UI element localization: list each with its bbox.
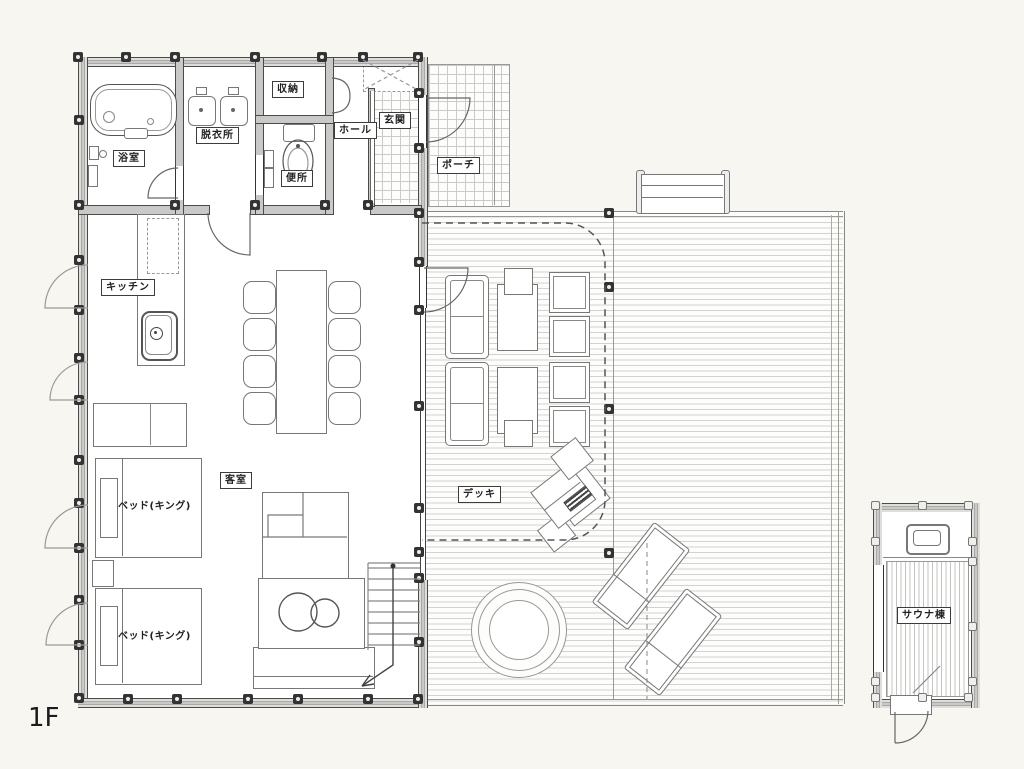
structural-post xyxy=(74,640,84,650)
bed-label: ベッド(キング) xyxy=(118,497,191,512)
structural-post xyxy=(414,401,424,411)
structural-post xyxy=(74,455,84,465)
kitchen-faucet-dot xyxy=(154,331,157,334)
room-label-bath: 浴室 xyxy=(113,150,145,167)
structural-post xyxy=(358,52,368,62)
room-label-toilet: 便所 xyxy=(281,170,313,187)
dining-chair xyxy=(243,355,276,388)
structural-post xyxy=(604,404,614,414)
bathtub-dot xyxy=(147,118,154,125)
door-swing-arc xyxy=(895,711,928,743)
structural-post xyxy=(74,305,84,315)
dining-chair xyxy=(328,281,361,314)
stove-body xyxy=(258,578,365,649)
structural-post xyxy=(414,88,424,98)
structural-post xyxy=(121,52,131,62)
bathtub-drain xyxy=(103,111,115,123)
dining-chair xyxy=(328,355,361,388)
room-label-deck: デッキ xyxy=(458,486,501,503)
hot-tub-water xyxy=(489,600,549,660)
sauna-bench-boards xyxy=(886,561,969,697)
structural-post xyxy=(73,52,83,62)
wall-toilet-hall xyxy=(325,57,334,215)
structural-post xyxy=(74,353,84,363)
stove-hearth-line xyxy=(253,676,373,677)
bench-slat-line xyxy=(641,185,723,186)
room-label-kitchen: キッチン xyxy=(101,279,155,296)
sauna-heater-inner xyxy=(913,530,941,546)
washbasin-faucet xyxy=(196,87,207,95)
wall-left xyxy=(78,57,88,708)
deck-sofa-cushion xyxy=(450,367,484,441)
cabinet-divider xyxy=(150,403,151,445)
room-label-hall: ホール xyxy=(334,122,377,139)
door-opening xyxy=(418,95,427,148)
shower-fixture xyxy=(89,146,99,160)
sauna-wall-post xyxy=(871,501,880,510)
room-label-porch: ポーチ xyxy=(437,157,480,174)
sauna-wall-post xyxy=(968,557,977,566)
structural-post xyxy=(250,52,260,62)
bed-pillow xyxy=(100,606,118,666)
lounger-backrest-line xyxy=(646,640,681,668)
structural-post xyxy=(363,694,373,704)
toilet-paper-holder xyxy=(264,150,274,168)
deck-edge-bottom xyxy=(422,699,843,706)
structural-post xyxy=(414,637,424,647)
sauna-wall-post xyxy=(918,501,927,510)
deck-table-tray xyxy=(504,420,533,447)
stove-hearth xyxy=(253,647,375,689)
sauna-wall-post xyxy=(918,693,927,702)
sauna-wall-post xyxy=(964,693,973,702)
bench-slat-line xyxy=(641,197,723,198)
dining-chair xyxy=(243,281,276,314)
porch-divider xyxy=(494,64,495,205)
floor-label: 1F xyxy=(28,703,60,733)
structural-post xyxy=(604,282,614,292)
deck-inner-line xyxy=(831,215,832,699)
structural-post xyxy=(414,503,424,513)
structural-post xyxy=(74,395,84,405)
entrance-step xyxy=(370,91,375,203)
sauna-glass-left xyxy=(873,565,884,672)
deck-edge-right xyxy=(838,211,845,704)
structural-post xyxy=(74,543,84,553)
shower-head xyxy=(99,150,107,158)
structural-post xyxy=(414,573,424,583)
door-opening xyxy=(419,266,427,308)
deck-sofa-divider xyxy=(450,403,483,404)
structural-post xyxy=(320,200,330,210)
sauna-wall-post xyxy=(871,537,880,546)
sauna-wall-post xyxy=(968,537,977,546)
door-opening xyxy=(175,166,184,200)
structural-post xyxy=(414,305,424,315)
stove-counter xyxy=(262,492,349,580)
deck-bench xyxy=(636,170,728,214)
structural-post xyxy=(172,694,182,704)
entrance-floor xyxy=(373,91,418,203)
dining-table xyxy=(276,270,327,434)
structural-post xyxy=(413,52,423,62)
wall-storage-toilet xyxy=(255,115,334,124)
toilet-tank xyxy=(283,124,315,142)
room-label-entrance: 玄関 xyxy=(379,112,411,129)
room-label-dressing: 脱衣所 xyxy=(196,127,239,144)
structural-post xyxy=(74,693,84,703)
structural-post xyxy=(74,595,84,605)
structural-post xyxy=(317,52,327,62)
deck-sofa-cushion xyxy=(450,280,484,354)
nightstand xyxy=(92,560,114,587)
structural-post xyxy=(74,498,84,508)
washbasin-drain xyxy=(199,108,203,112)
bathtub-inner xyxy=(95,89,172,131)
deck-chair-cushion xyxy=(553,276,586,309)
structural-post xyxy=(414,143,424,153)
structural-post xyxy=(604,548,614,558)
dining-chair xyxy=(243,392,276,425)
room-label-storage: 収納 xyxy=(272,81,304,98)
structural-post xyxy=(243,694,253,704)
structural-post xyxy=(363,200,373,210)
bench-slats xyxy=(641,174,725,214)
structural-post xyxy=(413,694,423,704)
floor-plan-canvas: 浴室 脱衣所 収納 便所 ホール 玄関 ポーチ キッチン 客室 ベッド(キング)… xyxy=(0,0,1024,769)
structural-post xyxy=(74,115,84,125)
dining-chair xyxy=(328,318,361,351)
dining-chair xyxy=(243,318,276,351)
structural-post xyxy=(74,255,84,265)
room-label-sauna: サウナ棟 xyxy=(897,607,951,624)
sauna-bench-divider xyxy=(883,557,971,558)
washbasin-drain xyxy=(231,108,235,112)
structural-post xyxy=(123,694,133,704)
bathtub-faucet xyxy=(124,128,148,139)
dining-chair xyxy=(328,392,361,425)
deck-chair-cushion xyxy=(553,320,586,353)
shower-bar xyxy=(88,165,98,187)
structural-post xyxy=(74,200,84,210)
structural-post xyxy=(414,257,424,267)
structural-post xyxy=(604,208,614,218)
sauna-wall-post xyxy=(968,677,977,686)
structural-post xyxy=(250,200,260,210)
structural-post xyxy=(170,52,180,62)
lounger-backrest-line xyxy=(614,574,649,602)
sauna-wall-post xyxy=(871,693,880,702)
structural-post xyxy=(414,208,424,218)
kitchen-hood-dashed xyxy=(147,218,179,274)
deck-table-tray xyxy=(504,268,533,295)
deck-chair-cushion xyxy=(553,366,586,399)
sauna-wall-post xyxy=(964,501,973,510)
structural-post xyxy=(293,694,303,704)
washbasin-faucet xyxy=(228,87,239,95)
structural-post xyxy=(170,200,180,210)
room-label-guest-room: 客室 xyxy=(220,472,252,489)
toilet-paper-holder xyxy=(264,168,274,188)
cabinet xyxy=(93,403,187,447)
sauna-wall-post xyxy=(968,622,977,631)
door-opening xyxy=(255,155,264,195)
structural-post xyxy=(414,547,424,557)
bed-label: ベッド(キング) xyxy=(118,627,191,642)
porch-floor xyxy=(428,64,510,207)
sauna-wall-post xyxy=(871,677,880,686)
deck-sofa-divider xyxy=(450,316,483,317)
deck-edge-top xyxy=(422,211,843,217)
bed-pillow xyxy=(100,478,118,538)
